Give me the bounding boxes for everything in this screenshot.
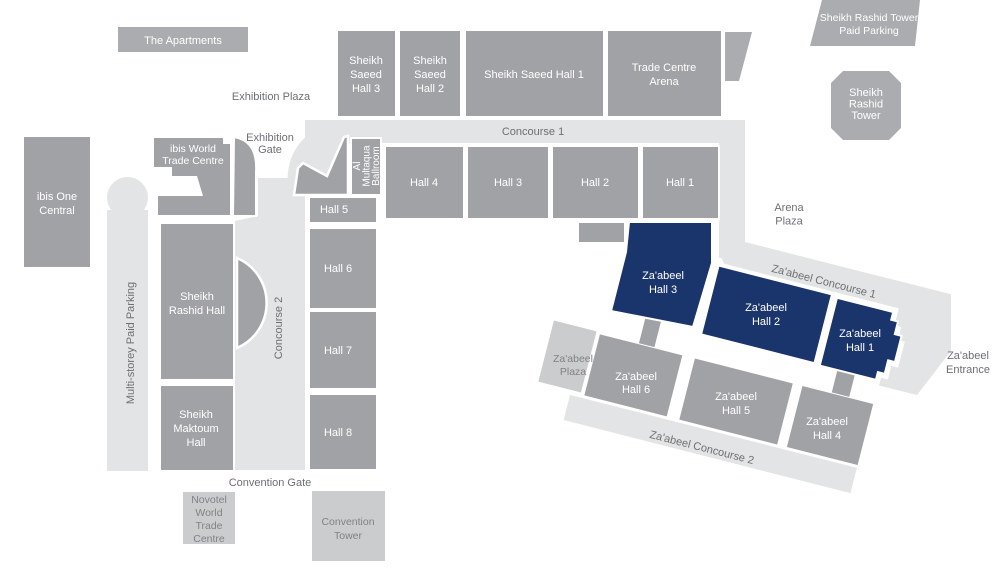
svg-text:World: World	[195, 507, 222, 519]
svg-text:Hall: Hall	[187, 437, 206, 449]
svg-text:Hall 8: Hall 8	[324, 427, 352, 439]
svg-text:Tower: Tower	[334, 530, 363, 542]
svg-text:Sheikh: Sheikh	[849, 87, 883, 99]
svg-text:Plaza: Plaza	[775, 216, 803, 228]
svg-text:Za'abeel: Za'abeel	[615, 371, 657, 383]
svg-text:Za'abeel: Za'abeel	[553, 353, 593, 365]
svg-text:Hall 3: Hall 3	[352, 83, 380, 95]
svg-text:Hall 2: Hall 2	[416, 83, 444, 95]
svg-text:Za'abeel: Za'abeel	[715, 391, 757, 403]
svg-text:Hall 2: Hall 2	[752, 316, 780, 328]
svg-text:ibis One: ibis One	[37, 191, 77, 203]
svg-text:Ballroom: Ballroom	[371, 146, 382, 185]
svg-text:Central: Central	[39, 205, 74, 217]
svg-text:Hall 4: Hall 4	[410, 177, 438, 189]
svg-text:Rashid: Rashid	[849, 99, 883, 111]
svg-text:Hall 3: Hall 3	[649, 284, 677, 296]
svg-text:Arena: Arena	[774, 202, 804, 214]
svg-text:ibis World: ibis World	[170, 143, 216, 155]
svg-text:Za'abeel: Za'abeel	[839, 328, 881, 340]
svg-text:Concourse 1: Concourse 1	[502, 126, 564, 138]
svg-text:Sheikh: Sheikh	[180, 291, 214, 303]
svg-text:Hall 6: Hall 6	[622, 384, 650, 396]
svg-text:Hall 2: Hall 2	[581, 177, 609, 189]
svg-text:Za'abeel: Za'abeel	[642, 270, 684, 282]
svg-text:Hall 4: Hall 4	[813, 430, 841, 442]
svg-text:Multi-storey Paid Parking: Multi-storey Paid Parking	[125, 282, 137, 404]
svg-text:Rashid Hall: Rashid Hall	[169, 305, 225, 317]
svg-text:Maktoum: Maktoum	[173, 423, 218, 435]
svg-text:Centre: Centre	[193, 533, 225, 545]
svg-text:Sheikh: Sheikh	[179, 409, 213, 421]
svg-text:Paid Parking: Paid Parking	[839, 25, 899, 37]
svg-text:Exhibition Plaza: Exhibition Plaza	[232, 91, 311, 103]
svg-text:Entrance: Entrance	[946, 364, 990, 376]
svg-text:Tower: Tower	[851, 110, 881, 122]
svg-text:Trade Centre: Trade Centre	[632, 62, 696, 74]
svg-text:Gate: Gate	[258, 144, 282, 156]
svg-text:Sheikh: Sheikh	[413, 55, 447, 67]
svg-text:Trade: Trade	[195, 520, 222, 532]
svg-text:Arena: Arena	[649, 76, 679, 88]
svg-text:Hall 7: Hall 7	[324, 345, 352, 357]
svg-text:The Apartments: The Apartments	[144, 35, 222, 47]
svg-text:Sheikh Saeed Hall 1: Sheikh Saeed Hall 1	[484, 69, 584, 81]
svg-text:Sheikh Rashid Tower: Sheikh Rashid Tower	[820, 12, 919, 24]
svg-text:Saeed: Saeed	[414, 69, 446, 81]
svg-text:Za'abeel: Za'abeel	[745, 302, 787, 314]
svg-text:Sheikh: Sheikh	[349, 55, 383, 67]
svg-text:Plaza: Plaza	[560, 366, 586, 378]
svg-text:Saeed: Saeed	[350, 69, 382, 81]
svg-text:Hall 1: Hall 1	[846, 342, 874, 354]
svg-text:Convention: Convention	[321, 516, 374, 528]
svg-text:Za'abeel: Za'abeel	[947, 350, 989, 362]
svg-text:Convention Gate: Convention Gate	[229, 477, 312, 489]
svg-text:Trade Centre: Trade Centre	[162, 155, 224, 167]
svg-text:Novotel: Novotel	[191, 494, 227, 506]
svg-text:Za'abeel: Za'abeel	[806, 416, 848, 428]
svg-text:Hall 5: Hall 5	[722, 405, 750, 417]
svg-text:Concourse 2: Concourse 2	[273, 297, 285, 359]
svg-text:Hall 5: Hall 5	[320, 204, 348, 216]
svg-text:Hall 3: Hall 3	[494, 177, 522, 189]
svg-text:Hall 6: Hall 6	[324, 263, 352, 275]
svg-text:Exhibition: Exhibition	[246, 132, 294, 144]
svg-text:Hall 1: Hall 1	[666, 177, 694, 189]
